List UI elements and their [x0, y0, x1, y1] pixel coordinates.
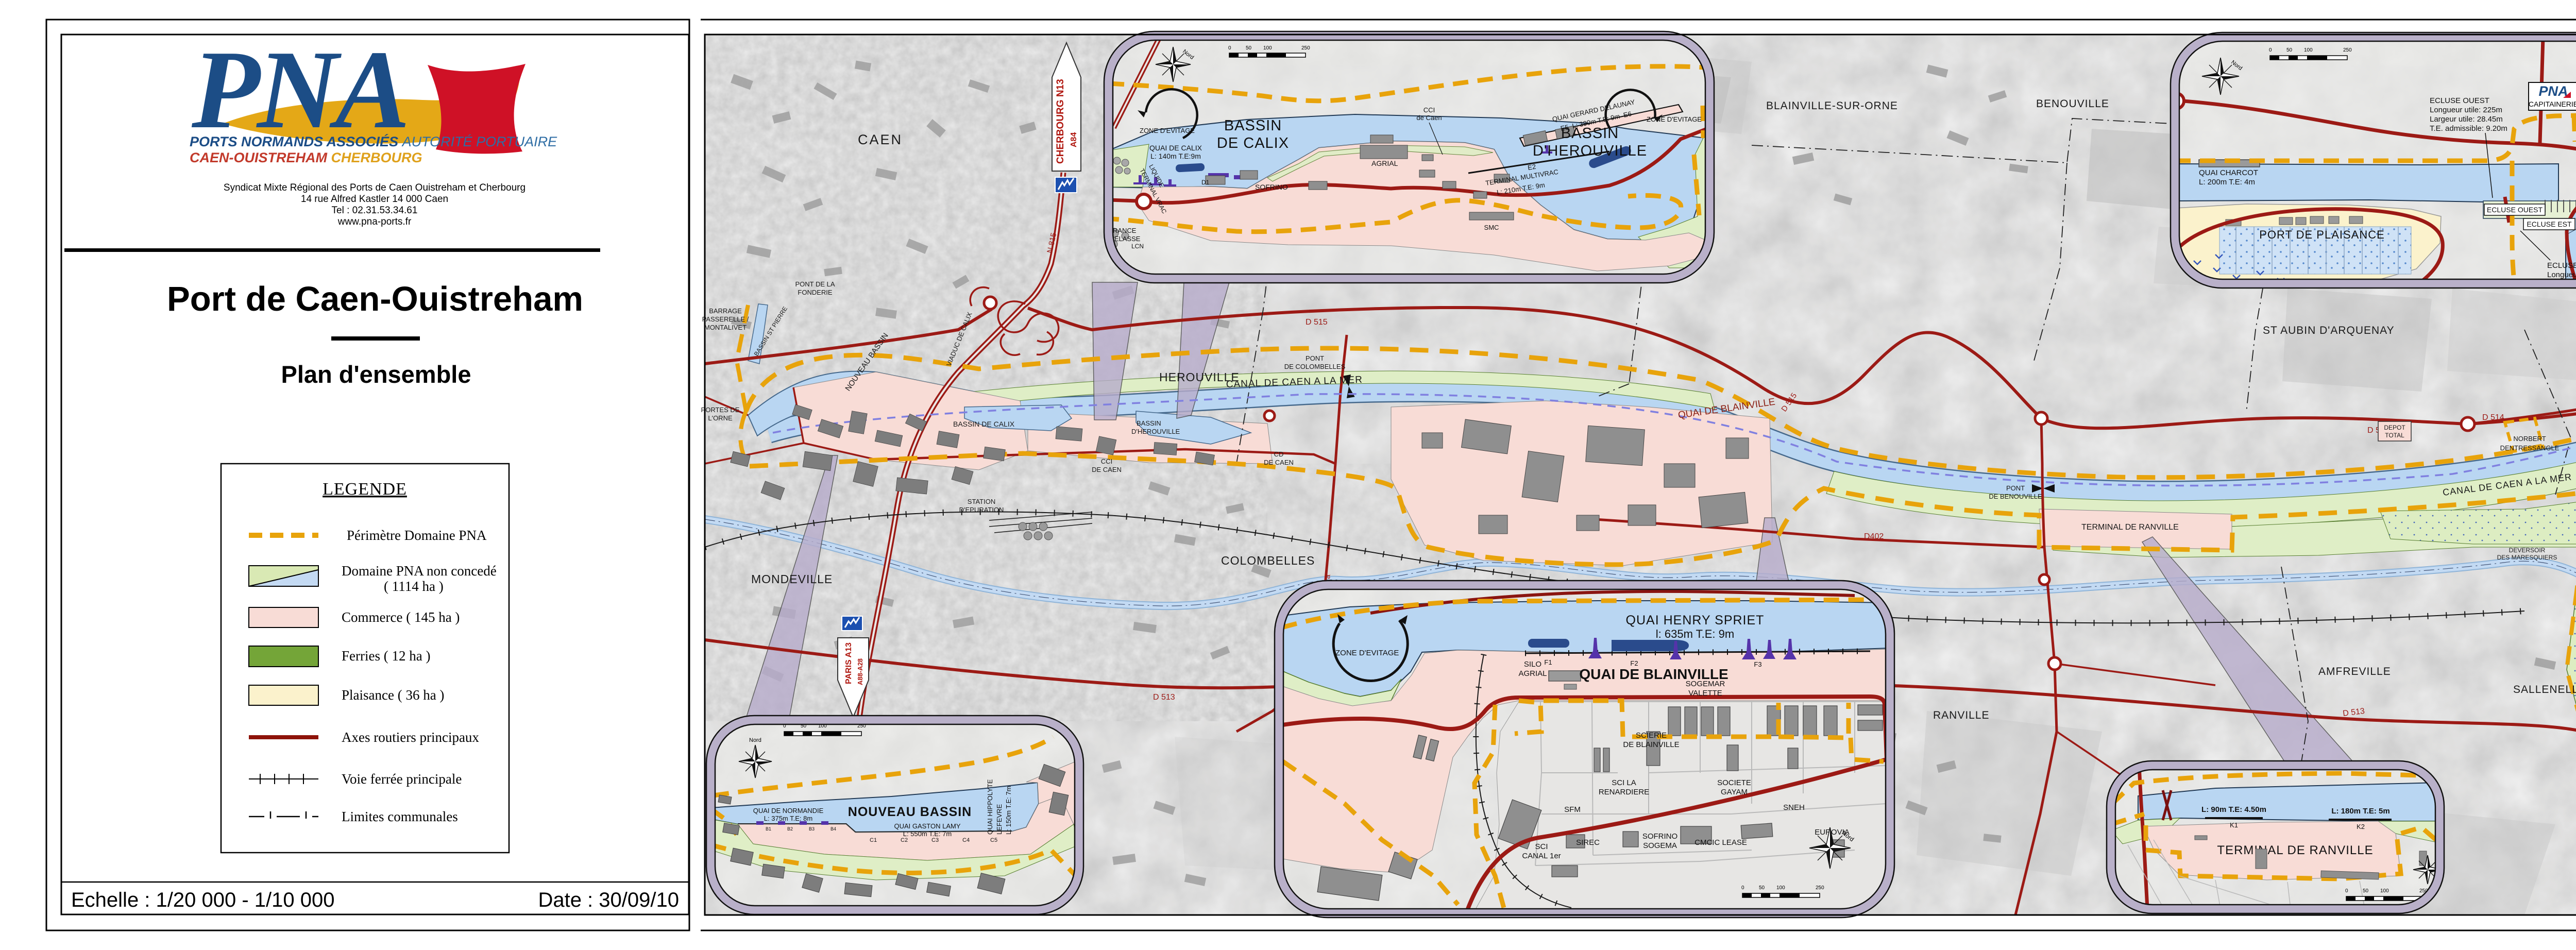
svg-text:PASSERELLE /: PASSERELLE /	[702, 315, 749, 323]
svg-text:Syndicat Mixte Régional des Po: Syndicat Mixte Régional des Ports de Cae…	[224, 182, 526, 193]
svg-text:FONDERIE: FONDERIE	[798, 289, 833, 296]
svg-text:QUAI DE CALIX: QUAI DE CALIX	[1149, 144, 1202, 152]
svg-text:AMFREVILLE: AMFREVILLE	[2318, 666, 2391, 677]
svg-text:SIREC: SIREC	[1576, 838, 1600, 847]
svg-text:50: 50	[2286, 47, 2293, 53]
svg-text:B2: B2	[787, 826, 793, 832]
svg-text:Limites communales: Limites communales	[342, 809, 458, 824]
svg-text:D 513: D 513	[1153, 693, 1175, 702]
svg-text:F2: F2	[1630, 659, 1638, 667]
svg-text:CHERBOURG N13: CHERBOURG N13	[1055, 79, 1066, 164]
svg-text:BASSIN: BASSIN	[1224, 117, 1282, 134]
svg-text:50: 50	[1246, 45, 1252, 51]
svg-text:BARRAGE: BARRAGE	[709, 307, 742, 315]
svg-text:DES MARESQUIERS: DES MARESQUIERS	[2497, 554, 2557, 561]
svg-text:ZONE D'EVITAGE: ZONE D'EVITAGE	[1647, 115, 1702, 123]
svg-text:D402: D402	[1864, 532, 1884, 541]
svg-text:SALLENELLES: SALLENELLES	[2513, 684, 2576, 695]
svg-text:CMCIC LEASE: CMCIC LEASE	[1694, 838, 1747, 847]
svg-text:Largeur utile: 28.45m: Largeur utile: 28.45m	[2430, 115, 2503, 124]
svg-text:A88-A28: A88-A28	[856, 658, 864, 685]
svg-text:DE CAEN: DE CAEN	[1092, 466, 1122, 473]
svg-text:SCI LA: SCI LA	[1612, 778, 1636, 787]
svg-text:100: 100	[1776, 885, 1785, 891]
svg-text:RENARDIERE: RENARDIERE	[1599, 788, 1649, 796]
svg-text:SOGEMAR: SOGEMAR	[1686, 680, 1725, 688]
svg-text:( 1114 ha ): ( 1114 ha )	[384, 579, 444, 594]
svg-text:CAEN: CAEN	[858, 132, 903, 147]
svg-text:ECLUSE OUEST: ECLUSE OUEST	[2430, 96, 2489, 105]
svg-text:C4: C4	[962, 837, 970, 843]
svg-text:0: 0	[2345, 888, 2348, 894]
svg-text:L: 550m T.E: 7m: L: 550m T.E: 7m	[903, 830, 952, 838]
svg-text:Commerce ( 145 ha ): Commerce ( 145 ha )	[342, 609, 460, 625]
svg-text:0: 0	[2269, 47, 2272, 53]
svg-text:ECLUSE EST: ECLUSE EST	[2547, 261, 2576, 270]
svg-text:DEVERSOIR: DEVERSOIR	[2509, 547, 2546, 554]
svg-text:MONDEVILLE: MONDEVILLE	[751, 572, 833, 586]
svg-text:PARIS A13: PARIS A13	[844, 642, 853, 684]
svg-text:SOCIETE: SOCIETE	[1717, 778, 1751, 787]
svg-text:B4: B4	[831, 826, 836, 832]
svg-text:K2: K2	[2357, 823, 2365, 830]
svg-text:SFM: SFM	[1564, 805, 1581, 814]
svg-text:Echelle : 1/20 000 - 1/10 000: Echelle : 1/20 000 - 1/10 000	[71, 889, 334, 911]
svg-text:QUAI HIPPOLYTE: QUAI HIPPOLYTE	[986, 779, 994, 835]
svg-text:L'ORNE: L'ORNE	[708, 414, 733, 422]
svg-text:Plaisance ( 36 ha ): Plaisance ( 36 ha )	[342, 687, 444, 703]
svg-text:250: 250	[1301, 45, 1310, 51]
svg-text:PONT: PONT	[2006, 484, 2025, 492]
svg-text:VALETTE: VALETTE	[1688, 689, 1722, 698]
svg-text:L: 375m T.E: 8m: L: 375m T.E: 8m	[764, 815, 812, 822]
svg-text:CAEN-OUISTREHAM CHERBOURG: CAEN-OUISTREHAM CHERBOURG	[190, 150, 422, 165]
svg-text:DE CALIX: DE CALIX	[1217, 135, 1289, 151]
svg-text:Port de Caen-Ouistreham: Port de Caen-Ouistreham	[167, 280, 583, 318]
svg-text:C3: C3	[931, 837, 939, 843]
svg-text:DE BENOUVILLE: DE BENOUVILLE	[1989, 493, 2042, 500]
svg-text:Longueur utile: 181.30m: Longueur utile: 181.30m	[2547, 270, 2576, 279]
svg-text:L: 180m T.E: 5m: L: 180m T.E: 5m	[2331, 807, 2389, 816]
svg-text:K1: K1	[2230, 821, 2238, 829]
svg-text:100: 100	[2304, 47, 2313, 53]
svg-text:14 rue Alfred Kastler 14 000 C: 14 rue Alfred Kastler 14 000 Caen	[301, 194, 448, 205]
svg-text:D'HEROUVILLE: D'HEROUVILLE	[1131, 428, 1180, 435]
svg-text:Date : 30/09/10: Date : 30/09/10	[538, 889, 679, 911]
svg-text:L: 90m T.E: 4.50m: L: 90m T.E: 4.50m	[2201, 805, 2266, 814]
svg-text:QUAI DE NORMANDIE: QUAI DE NORMANDIE	[753, 807, 824, 815]
svg-text:C5: C5	[990, 837, 997, 843]
svg-text:250: 250	[1816, 885, 1824, 891]
svg-text:Plan d'ensemble: Plan d'ensemble	[281, 361, 471, 388]
svg-text:SOFRINO: SOFRINO	[1255, 183, 1288, 191]
svg-text:Périmètre Domaine PNA: Périmètre Domaine PNA	[347, 528, 487, 543]
svg-text:Axes routiers principaux: Axes routiers principaux	[342, 730, 479, 745]
svg-text:NOUVEAU BASSIN: NOUVEAU BASSIN	[848, 805, 972, 819]
svg-text:MONTALIVET: MONTALIVET	[704, 324, 747, 331]
svg-text:B1: B1	[766, 826, 771, 832]
svg-text:CCI: CCI	[1101, 457, 1112, 465]
svg-text:DE CAEN: DE CAEN	[1264, 459, 1294, 466]
svg-text:D 515: D 515	[1306, 318, 1328, 327]
svg-text:ECLUSE OUEST: ECLUSE OUEST	[2487, 206, 2543, 214]
svg-text:RANVILLE: RANVILLE	[1933, 709, 1990, 721]
svg-text:ST AUBIN D'ARQUENAY: ST AUBIN D'ARQUENAY	[2263, 325, 2395, 336]
svg-text:L: 150m T.E: 7m: L: 150m T.E: 7m	[1005, 786, 1012, 835]
svg-text:100: 100	[2380, 888, 2389, 894]
svg-text:D'EPURATION: D'EPURATION	[959, 506, 1004, 514]
svg-text:A84: A84	[1070, 132, 1078, 147]
svg-text:Nord: Nord	[749, 737, 761, 743]
svg-text:BASSIN DE CALIX: BASSIN DE CALIX	[953, 420, 1015, 428]
svg-text:BLAINVILLE-SUR-ORNE: BLAINVILLE-SUR-ORNE	[1766, 100, 1898, 112]
svg-text:STATION: STATION	[968, 498, 995, 505]
svg-text:DE COLOMBELLES: DE COLOMBELLES	[1284, 363, 1346, 370]
svg-text:C1: C1	[870, 837, 877, 843]
svg-text:ZONE D'EVITAGE: ZONE D'EVITAGE	[1140, 127, 1195, 134]
svg-text:0: 0	[1228, 45, 1231, 51]
svg-text:D'HEROUVILLE: D'HEROUVILLE	[1533, 143, 1647, 159]
svg-text:PONT DE LA: PONT DE LA	[795, 280, 835, 288]
svg-text:C2: C2	[901, 837, 908, 843]
svg-text:DE BLAINVILLE: DE BLAINVILLE	[1623, 740, 1679, 749]
svg-text:Voie ferrée principale: Voie ferrée principale	[342, 771, 462, 787]
svg-text:PNA: PNA	[2538, 83, 2568, 99]
svg-text:CANAL 1er: CANAL 1er	[1522, 852, 1561, 860]
svg-text:AGRIAL: AGRIAL	[1518, 669, 1547, 678]
svg-text:PORTS NORMANDS ASSOCIÉS AUTORI: PORTS NORMANDS ASSOCIÉS AUTORITÉ PORTUAI…	[190, 133, 557, 149]
svg-text:SOFRINO: SOFRINO	[1642, 832, 1677, 841]
svg-text:LEGENDE: LEGENDE	[323, 480, 407, 499]
svg-text:ECLUSE EST: ECLUSE EST	[2527, 220, 2572, 228]
svg-text:Longueur utile: 225m: Longueur utile: 225m	[2430, 106, 2502, 114]
svg-text:L: 140m T.E:9m: L: 140m T.E:9m	[1150, 152, 1201, 160]
svg-text:QUAI HENRY SPRIET: QUAI HENRY SPRIET	[1626, 613, 1765, 627]
svg-text:100: 100	[1263, 45, 1272, 51]
svg-text:GAYAM: GAYAM	[1721, 788, 1748, 796]
svg-text:CAPITAINERIE: CAPITAINERIE	[2529, 100, 2576, 108]
svg-text:TERMINAL DE RANVILLE: TERMINAL DE RANVILLE	[2217, 843, 2373, 857]
svg-text:PORT DE PLAISANCE: PORT DE PLAISANCE	[2259, 228, 2385, 241]
svg-text:F1: F1	[1544, 658, 1552, 666]
svg-text:B3: B3	[809, 826, 815, 832]
svg-text:CD: CD	[1274, 450, 1284, 458]
svg-text:PORTES DE: PORTES DE	[701, 406, 740, 414]
svg-text:SNEH: SNEH	[1783, 803, 1805, 812]
svg-text:SILO: SILO	[1524, 660, 1541, 669]
svg-text:COLOMBELLES: COLOMBELLES	[1221, 554, 1315, 567]
svg-text:LEFEVRE: LEFEVRE	[995, 804, 1003, 835]
svg-text:D 514: D 514	[2482, 413, 2504, 422]
svg-text:Ferries ( 12 ha ): Ferries ( 12 ha )	[342, 648, 430, 664]
svg-text:PNA: PNA	[191, 28, 407, 152]
svg-text:SOGEMA: SOGEMA	[1643, 841, 1677, 850]
svg-text:ZONE D'EVITAGE: ZONE D'EVITAGE	[1335, 649, 1399, 657]
svg-text:DEPOT: DEPOT	[2384, 424, 2405, 431]
svg-text:T.E. admissible: 9.20m: T.E. admissible: 9.20m	[2430, 124, 2507, 133]
svg-text:L: 200m T.E: 4m: L: 200m T.E: 4m	[2199, 178, 2255, 186]
svg-text:50: 50	[2363, 888, 2369, 894]
svg-text:F3: F3	[1754, 660, 1761, 668]
svg-text:TERMINAL DE RANVILLE: TERMINAL DE RANVILLE	[2081, 523, 2179, 532]
svg-text:E2: E2	[1527, 163, 1536, 172]
svg-text:50: 50	[1759, 885, 1765, 891]
svg-text:l: 635m T.E: 9m: l: 635m T.E: 9m	[1656, 627, 1734, 640]
svg-text:de Caen: de Caen	[1416, 114, 1442, 122]
svg-text:SMC: SMC	[1484, 224, 1499, 231]
svg-text:NORBERT: NORBERT	[2513, 435, 2546, 443]
svg-text:Tel : 02.31.53.34.61: Tel : 02.31.53.34.61	[332, 205, 418, 216]
svg-text:0: 0	[1741, 885, 1744, 891]
svg-text:DENTRESSANGLE: DENTRESSANGLE	[2500, 444, 2560, 452]
svg-text:BENOUVILLE: BENOUVILLE	[2036, 98, 2109, 110]
svg-text:SCIERIE: SCIERIE	[1636, 731, 1667, 740]
svg-text:PONT: PONT	[1306, 354, 1324, 362]
svg-text:250: 250	[2343, 47, 2352, 53]
svg-text:Domaine PNA non concedé: Domaine PNA non concedé	[342, 563, 497, 579]
svg-text:D1: D1	[1201, 179, 1210, 186]
svg-text:BASSIN: BASSIN	[1137, 419, 1161, 427]
svg-text:SCI: SCI	[1535, 842, 1548, 851]
svg-text:TOTAL: TOTAL	[2385, 432, 2404, 439]
svg-text:www.pna-ports.fr: www.pna-ports.fr	[337, 216, 412, 227]
svg-text:QUAI GASTON LAMY: QUAI GASTON LAMY	[894, 822, 960, 830]
svg-text:AGRIAL: AGRIAL	[1371, 159, 1398, 167]
svg-text:CCI: CCI	[1423, 106, 1435, 114]
svg-text:LCN: LCN	[1131, 243, 1144, 250]
svg-text:QUAI CHARCOT: QUAI CHARCOT	[2199, 168, 2258, 177]
